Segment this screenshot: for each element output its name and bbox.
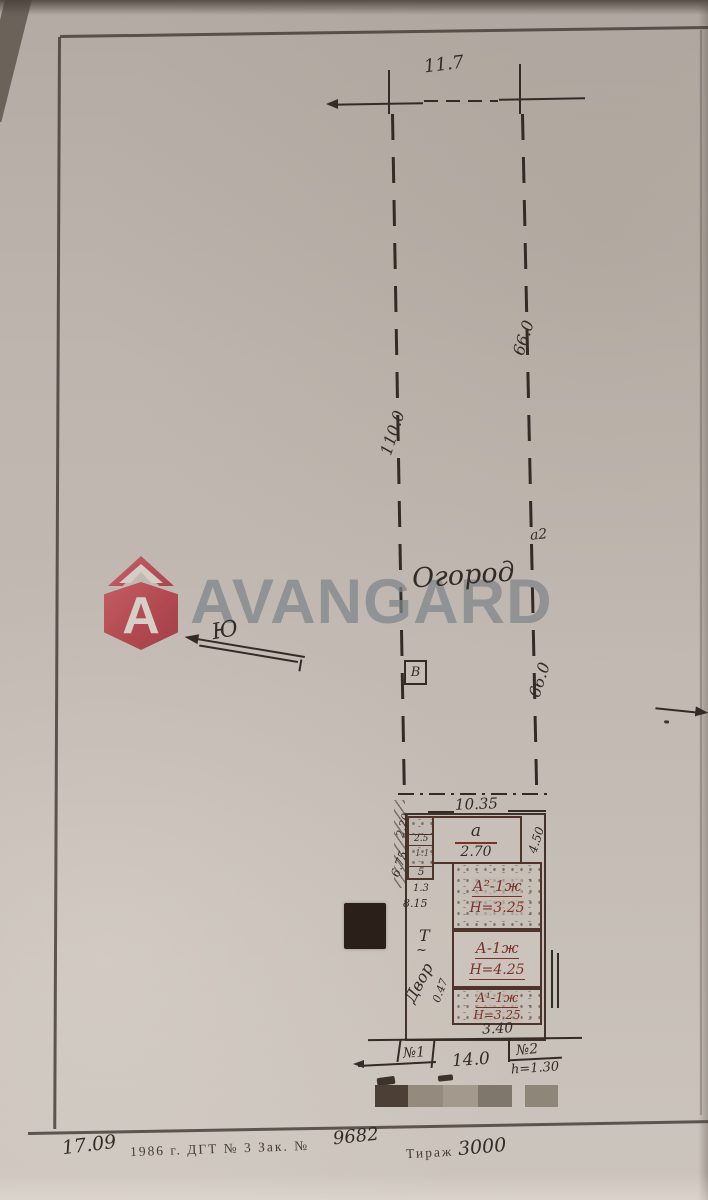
garden-label: Огород	[411, 558, 515, 592]
frontage-label: 10.35	[455, 796, 498, 812]
logo-monogram: А	[100, 586, 182, 646]
house-low: А¹-1ж Н=3.25	[452, 988, 542, 1025]
t-mark: Т	[419, 928, 430, 944]
house-low-label: А¹-1ж	[476, 991, 519, 1008]
frame-left	[53, 37, 60, 1129]
survey-point-b-box: В	[404, 660, 427, 685]
footer-order-no: 9682	[332, 1126, 379, 1149]
house-main-height: Н=3.25	[469, 900, 524, 916]
photo-bottom-edge	[0, 1174, 708, 1200]
house-main: А²-1ж Н=3.25	[452, 862, 542, 930]
t-mark-tilde: ~	[416, 944, 427, 957]
gate1-label: №1	[403, 1045, 426, 1061]
left-length-label: 8.15	[403, 898, 428, 909]
shed-offset-label: 1.3	[413, 884, 429, 894]
entry-structure: а 2.70	[430, 816, 522, 864]
upper-side-length: 66.0	[511, 319, 537, 358]
censor-block-4	[478, 1085, 512, 1107]
shed-column: 2.5 1.1 5	[407, 816, 434, 880]
survey-point-b-label: В	[411, 665, 421, 680]
span-label: 14.0	[451, 1051, 490, 1071]
middle-length: 110.0	[378, 409, 407, 458]
entry-letter: а	[455, 821, 497, 844]
censor-block-3	[443, 1085, 478, 1107]
shed-cell-label-3: 5	[418, 868, 424, 878]
boundary-point-a2: а2	[529, 527, 548, 543]
south-arrow-head	[184, 632, 199, 644]
entry-area: 2.70	[460, 844, 491, 860]
gate2-label: №2	[515, 1042, 538, 1058]
margin-arrow-line	[655, 707, 699, 714]
censor-square	[344, 903, 386, 949]
shed-cell-label-1: 2.5	[414, 835, 428, 844]
margin-arrow-dot	[664, 720, 669, 724]
gate2-height-label: h=1.30	[511, 1060, 560, 1076]
footer-imprint: 1986 г. ДГТ № 3 Зак. №	[130, 1139, 309, 1159]
censor-block-5	[525, 1085, 558, 1107]
gate1-arrowhead	[353, 1060, 364, 1068]
survey-post-right	[519, 64, 521, 114]
footer-date: 17.09	[61, 1133, 117, 1158]
house-mid-height: Н=4.25	[469, 962, 524, 980]
censor-scribble-2	[438, 1074, 454, 1082]
rear-width-label: 3.40	[482, 1021, 514, 1037]
shed-cell-hatch-1	[409, 818, 432, 835]
photo-corner-shadow	[0, 0, 34, 122]
margin-arrow-head	[695, 706, 708, 717]
right-fence-tick-2	[557, 953, 559, 1008]
footer-print-run-label: Тираж	[406, 1145, 454, 1161]
avangard-logo-icon: А	[100, 556, 182, 650]
top-measure-arrowhead	[326, 99, 338, 109]
gate1-tick-left	[396, 1040, 401, 1062]
top-measure-line-left	[331, 102, 423, 106]
house-mid: А-1ж Н=4.25	[452, 930, 542, 988]
censor-block-1	[375, 1085, 408, 1107]
slope-hatch-marks	[394, 800, 405, 888]
south-arrow-tick	[298, 659, 302, 671]
south-label: Ю	[210, 618, 240, 644]
south-arrow	[180, 630, 308, 684]
top-measure-line-mid	[424, 100, 498, 102]
frame-right	[700, 30, 702, 1115]
scanned-plan-page: 11.7 66.0 110.0 66.0 Огород а2 В Ю А AVA…	[0, 0, 708, 1200]
photo-top-edge	[0, 0, 708, 15]
margin-arrow	[654, 697, 708, 730]
right-fence-tick-1	[551, 950, 553, 1008]
survey-post-left	[388, 70, 390, 114]
gate1-tick-right	[431, 1040, 436, 1068]
lower-side-length: 66.0	[527, 661, 553, 700]
shed-cell-label-2: 1.1	[415, 850, 429, 859]
house-low-height: Н=3.25	[473, 1008, 520, 1022]
frontage-tick-right	[508, 810, 546, 812]
top-width-label: 11.7	[423, 54, 465, 77]
frame-top	[60, 26, 708, 38]
footer-print-run: 3000	[457, 1136, 507, 1159]
top-measure-line-right	[499, 97, 585, 101]
censor-block-2	[408, 1085, 443, 1107]
house-mid-label: А-1ж	[475, 939, 518, 959]
house-main-label: А²-1ж	[472, 877, 521, 897]
